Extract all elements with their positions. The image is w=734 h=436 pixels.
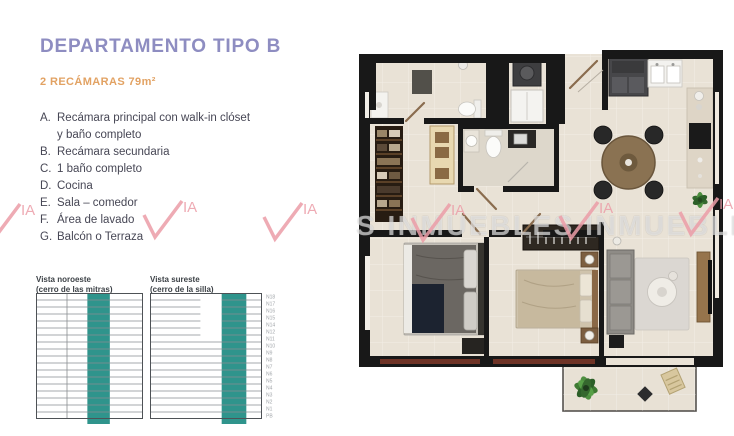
feature-letter: G. bbox=[40, 229, 57, 246]
toilet-bowl bbox=[459, 102, 476, 116]
feature-item: A.Recámara principal con walk-in clóset … bbox=[40, 110, 280, 144]
closet bbox=[523, 225, 599, 250]
feature-text: Recámara secundaria bbox=[57, 144, 262, 161]
floor-plan bbox=[356, 30, 728, 426]
highlight-column bbox=[87, 293, 109, 424]
page-title: DEPARTAMENTO TIPO B bbox=[40, 36, 281, 58]
tv bbox=[708, 260, 712, 314]
feature-text: Recámara principal con walk-in clóset y … bbox=[57, 110, 262, 144]
floor-stack-chart-noroeste bbox=[36, 293, 146, 433]
feature-letter: C. bbox=[40, 161, 57, 178]
lamp bbox=[585, 331, 594, 340]
chart-title-line1: Vista noroeste bbox=[36, 275, 112, 285]
headboard bbox=[478, 243, 485, 335]
feature-letter: F. bbox=[40, 212, 57, 229]
feature-letter: D. bbox=[40, 178, 57, 195]
bedroom-secundaria bbox=[516, 225, 599, 343]
chart-title-noroeste: Vista noroeste (cerro de las mitras) bbox=[36, 275, 112, 294]
feature-list: A.Recámara principal con walk-in clóset … bbox=[40, 110, 280, 246]
window-strip bbox=[380, 359, 480, 364]
floor-label: N3 bbox=[266, 392, 273, 398]
floor-label: N6 bbox=[266, 371, 273, 377]
feature-text: Cocina bbox=[57, 178, 262, 195]
dining-chair bbox=[645, 126, 663, 144]
bath-mat bbox=[412, 70, 432, 94]
chart-title-line1: Vista sureste bbox=[150, 275, 214, 285]
page-subtitle: 2 RECÁMARAS 79m² bbox=[40, 76, 156, 88]
floor-label: N7 bbox=[266, 364, 273, 370]
svg-text:IA: IA bbox=[21, 202, 35, 219]
dining-chair bbox=[594, 181, 612, 199]
highlight-column bbox=[222, 293, 247, 424]
feature-item: G.Balcón o Terraza bbox=[40, 229, 280, 246]
dining-chair bbox=[594, 126, 612, 144]
feature-text: Sala – comedor bbox=[57, 195, 262, 212]
floor-label: N12 bbox=[266, 329, 275, 335]
brochure-page: DEPARTAMENTO TIPO B 2 RECÁMARAS 79m² A.R… bbox=[0, 0, 734, 436]
floor-label: N16 bbox=[266, 308, 275, 314]
floor-label: N17 bbox=[266, 301, 275, 307]
dining-chair bbox=[645, 181, 663, 199]
feature-text: Balcón o Terraza bbox=[57, 229, 262, 246]
watermark-via-logo: IA bbox=[0, 200, 38, 251]
toilet-bowl bbox=[486, 137, 501, 158]
floor-label: N9 bbox=[266, 350, 273, 356]
feature-item: F.Área de lavado bbox=[40, 212, 280, 229]
feature-item: D.Cocina bbox=[40, 178, 280, 195]
floor-label: N10 bbox=[266, 343, 275, 349]
floor-label: N14 bbox=[266, 322, 275, 328]
lamp bbox=[585, 255, 594, 264]
feature-letter: E. bbox=[40, 195, 57, 212]
floor-label: N1 bbox=[266, 406, 273, 412]
floor-label: N8 bbox=[266, 357, 273, 363]
svg-text:IA: IA bbox=[303, 201, 317, 218]
feature-item: C.1 baño completo bbox=[40, 161, 280, 178]
floor-label: N5 bbox=[266, 378, 273, 384]
feature-letter: B. bbox=[40, 144, 57, 161]
floor-label: PB bbox=[266, 413, 273, 419]
feature-text: Área de lavado bbox=[57, 212, 262, 229]
window-strip bbox=[493, 359, 595, 364]
feature-text: 1 baño completo bbox=[57, 161, 262, 178]
walk-in-closet bbox=[375, 126, 403, 222]
floor-label: N11 bbox=[266, 336, 275, 342]
feature-letter: A. bbox=[40, 110, 57, 144]
balcony bbox=[563, 360, 696, 411]
cooktop bbox=[689, 123, 711, 149]
balcony-door-threshold bbox=[606, 358, 694, 365]
floor-label: N4 bbox=[266, 385, 273, 391]
floor-label: N2 bbox=[266, 399, 273, 405]
dresser bbox=[430, 126, 454, 184]
laundry-area bbox=[511, 60, 543, 122]
floor-label: N18 bbox=[266, 294, 275, 300]
feature-item: B.Recámara secundaria bbox=[40, 144, 280, 161]
floor-stack-chart-sureste: N18N17N16N15N14N12N11N10N9N8N7N6N5N4N3N2… bbox=[150, 293, 288, 433]
feature-item: E.Sala – comedor bbox=[40, 195, 280, 212]
toilet-tank bbox=[485, 130, 502, 136]
headboard bbox=[592, 270, 598, 328]
floor-label: N15 bbox=[266, 315, 275, 321]
chart-title-sureste: Vista sureste (cerro de la silla) bbox=[150, 275, 214, 294]
